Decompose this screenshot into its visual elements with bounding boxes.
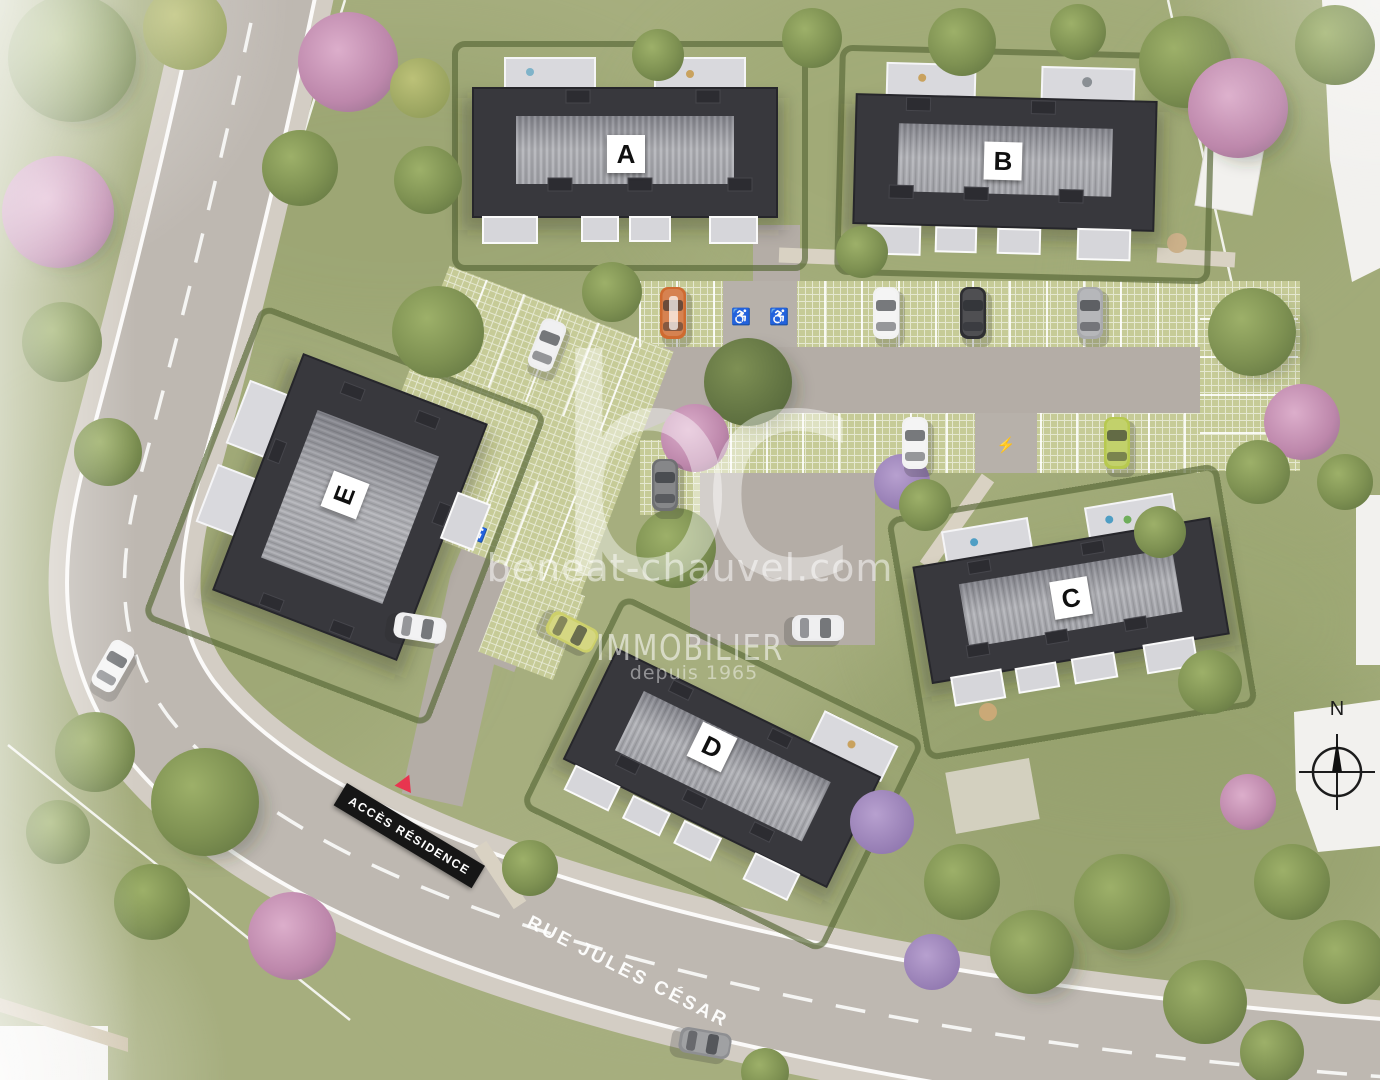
building-label-b: B bbox=[984, 142, 1023, 181]
building-label-c: C bbox=[1049, 576, 1093, 620]
compass-north-label: N bbox=[1325, 698, 1349, 721]
wheelchair-icon: ♿ bbox=[731, 307, 751, 326]
site-plan-canvas: ♿ ♿ ⚡ ♿ bbox=[0, 0, 1380, 1080]
site-plan-rendering: ♿ ♿ ⚡ ♿ bbox=[0, 0, 1380, 1080]
wheelchair-icon: ♿ bbox=[769, 307, 789, 326]
roof-terrace bbox=[505, 58, 595, 90]
building-label-a: A bbox=[607, 135, 645, 173]
ev-charging-icon: ⚡ bbox=[997, 436, 1016, 454]
